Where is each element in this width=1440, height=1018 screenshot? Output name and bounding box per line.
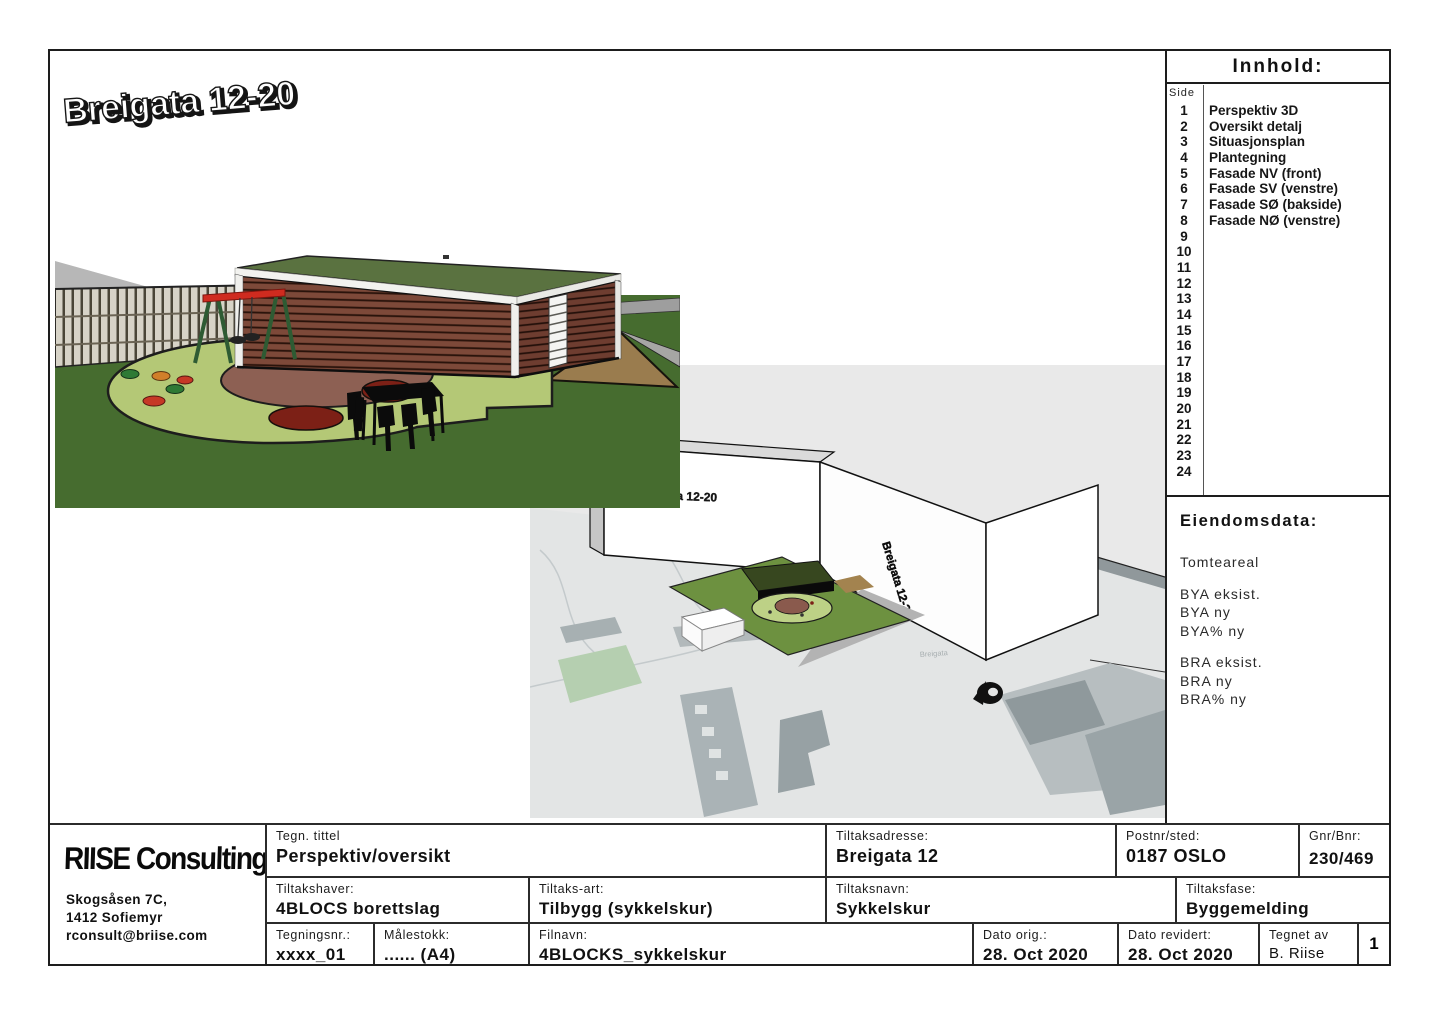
field-value: 4BLOCS borettslag	[276, 899, 528, 919]
innhold-page-number: 12	[1167, 276, 1201, 292]
innhold-page-number: 1	[1167, 103, 1201, 119]
innhold-page-number: 22	[1167, 432, 1201, 448]
field-gnr-bnr: Gnr/Bnr: 230/469	[1298, 823, 1389, 876]
field-postnr-sted: Postnr/sted: 0187 OSLO	[1115, 823, 1298, 876]
innhold-page-number: 7	[1167, 197, 1201, 213]
innhold-page-number: 14	[1167, 307, 1201, 323]
innhold-item-label: Fasade SV (venstre)	[1201, 181, 1338, 197]
field-tegn-tittel: Tegn. tittel Perspektiv/oversikt	[265, 823, 825, 876]
innhold-item-label: Fasade SØ (bakside)	[1201, 197, 1342, 213]
company-address: Skogsåsen 7C, 1412 Sofiemyr rconsult@bri…	[66, 891, 265, 945]
field-label: Tiltaksnavn:	[836, 882, 1175, 896]
innhold-page-number: 3	[1167, 134, 1201, 150]
innhold-row: 17	[1167, 354, 1389, 370]
innhold-item-label	[1201, 338, 1209, 354]
innhold-page-number: 15	[1167, 323, 1201, 339]
innhold-item-label: Situasjonsplan	[1201, 134, 1305, 150]
field-value: 230/469	[1309, 849, 1389, 869]
field-tiltakshaver: Tiltakshaver: 4BLOCS borettslag	[265, 876, 528, 922]
eiendomsdata-title: Eiendomsdata:	[1180, 512, 1380, 531]
innhold-item-label	[1201, 401, 1209, 417]
field-tiltaksadresse: Tiltaksadresse: Breigata 12	[825, 823, 1115, 876]
innhold-item-label	[1201, 323, 1209, 339]
bike-shed	[235, 255, 621, 378]
innhold-page-number: 24	[1167, 464, 1201, 480]
field-value: Breigata 12	[836, 846, 1115, 867]
innhold-page-number: 8	[1167, 213, 1201, 229]
eiendomsdata-bra-pct: BRA% ny	[1180, 690, 1380, 709]
innhold-row: 20	[1167, 401, 1389, 417]
company-email: rconsult@briise.com	[66, 927, 265, 945]
field-tiltaks-art: Tiltaks-art: Tilbygg (sykkelskur)	[528, 876, 825, 922]
company-address-line1: Skogsåsen 7C,	[66, 891, 265, 909]
innhold-page-number: 9	[1167, 229, 1201, 245]
innhold-item-label	[1201, 385, 1209, 401]
innhold-page-number: 13	[1167, 291, 1201, 307]
innhold-item-label	[1201, 276, 1209, 292]
innhold-item-label	[1201, 260, 1209, 276]
eiendomsdata-bra-ny: BRA ny	[1180, 672, 1380, 691]
innhold-row: 24	[1167, 464, 1389, 480]
innhold-title: Innhold:	[1167, 51, 1389, 84]
innhold-item-label: Oversikt detalj	[1201, 119, 1302, 135]
innhold-row: 16	[1167, 338, 1389, 354]
eiendomsdata-tomteareal: Tomteareal	[1180, 553, 1380, 572]
perspective-render	[55, 255, 680, 508]
innhold-page-number: 16	[1167, 338, 1201, 354]
field-value: B. Riise	[1269, 945, 1357, 962]
innhold-item-label	[1201, 432, 1209, 448]
innhold-page-number: 10	[1167, 244, 1201, 260]
innhold-row: 7Fasade SØ (bakside)	[1167, 197, 1389, 213]
innhold-item-label	[1201, 370, 1209, 386]
field-label: Tegnet av	[1269, 928, 1357, 942]
field-dato-revidert: Dato revidert: 28. Oct 2020	[1117, 922, 1258, 964]
innhold-page-number: 5	[1167, 166, 1201, 182]
innhold-item-label: Plantegning	[1201, 150, 1286, 166]
innhold-row: 12	[1167, 276, 1389, 292]
field-label: Tiltaksadresse:	[836, 829, 1115, 843]
innhold-row: 4Plantegning	[1167, 150, 1389, 166]
field-malestokk: Målestokk: ...... (A4)	[373, 922, 528, 964]
company-address-line2: 1412 Sofiemyr	[66, 909, 265, 927]
innhold-row: 1Perspektiv 3D	[1167, 103, 1389, 119]
innhold-list: 1Perspektiv 3D2Oversikt detalj3Situasjon…	[1167, 103, 1389, 480]
innhold-page-number: 21	[1167, 417, 1201, 433]
innhold-page-number: 19	[1167, 385, 1201, 401]
innhold-row: 5Fasade NV (front)	[1167, 166, 1389, 182]
field-filnavn: Filnavn: 4BLOCKS_sykkelskur	[528, 922, 972, 964]
innhold-item-label: Fasade NØ (venstre)	[1201, 213, 1340, 229]
innhold-row: 9	[1167, 229, 1389, 245]
field-label: Dato revidert:	[1128, 928, 1258, 942]
innhold-item-label	[1201, 448, 1209, 464]
field-value: ...... (A4)	[384, 945, 528, 965]
field-label: Tiltaksfase:	[1186, 882, 1389, 896]
innhold-page-number: 18	[1167, 370, 1201, 386]
innhold-page-number: 6	[1167, 181, 1201, 197]
page-title: Breigata 12-20 Breigata 12-20	[52, 75, 342, 155]
innhold-page-number: 23	[1167, 448, 1201, 464]
field-value: Byggemelding	[1186, 899, 1389, 919]
innhold-row: 2Oversikt detalj	[1167, 119, 1389, 135]
field-label: Tiltaks-art:	[539, 882, 825, 896]
innhold-row: 8Fasade NØ (venstre)	[1167, 213, 1389, 229]
innhold-page-number: 2	[1167, 119, 1201, 135]
field-label: Postnr/sted:	[1126, 829, 1298, 843]
innhold-item-label	[1201, 417, 1209, 433]
field-value: xxxx_01	[276, 945, 373, 965]
innhold-page-number: 20	[1167, 401, 1201, 417]
field-label: Tegn. tittel	[276, 829, 825, 843]
innhold-row: 10	[1167, 244, 1389, 260]
field-dato-orig: Dato orig.: 28. Oct 2020	[972, 922, 1117, 964]
innhold-item-label: Fasade NV (front)	[1201, 166, 1322, 182]
innhold-row: 22	[1167, 432, 1389, 448]
field-label: Tiltakshaver:	[276, 882, 528, 896]
field-value: 28. Oct 2020	[1128, 945, 1258, 965]
innhold-row: 19	[1167, 385, 1389, 401]
innhold-bottom-border	[1165, 495, 1391, 497]
field-value: 0187 OSLO	[1126, 846, 1298, 867]
field-tegnet-av: Tegnet av B. Riise	[1258, 922, 1357, 964]
eiendomsdata-bya-eksist: BYA eksist.	[1180, 585, 1380, 604]
innhold-item-label: Perspektiv 3D	[1201, 103, 1298, 119]
innhold-item-label	[1201, 307, 1209, 323]
innhold-item-label	[1201, 354, 1209, 370]
innhold-row: 18	[1167, 370, 1389, 386]
innhold-item-label	[1201, 291, 1209, 307]
innhold-row: 3Situasjonsplan	[1167, 134, 1389, 150]
innhold-page-number: 4	[1167, 150, 1201, 166]
drawing-sheet-page: { "page_title": "Breigata 12-20", "innho…	[0, 0, 1440, 1018]
field-tiltaksnavn: Tiltaksnavn: Sykkelskur	[825, 876, 1175, 922]
innhold-row: 23	[1167, 448, 1389, 464]
innhold-row: 15	[1167, 323, 1389, 339]
field-value: 4BLOCKS_sykkelskur	[539, 945, 972, 965]
innhold-page-number: 11	[1167, 260, 1201, 276]
field-label: Filnavn:	[539, 928, 972, 942]
innhold-row: 14	[1167, 307, 1389, 323]
field-label: Målestokk:	[384, 928, 528, 942]
field-tegningsnr: Tegningsnr.: xxxx_01	[265, 922, 373, 964]
innhold-row: 21	[1167, 417, 1389, 433]
innhold-row: 13	[1167, 291, 1389, 307]
eiendomsdata-bya-pct: BYA% ny	[1180, 622, 1380, 641]
innhold-item-label	[1201, 244, 1209, 260]
field-value: Sykkelskur	[836, 899, 1175, 919]
innhold-row: 11	[1167, 260, 1389, 276]
eiendomsdata-panel: Eiendomsdata: Tomteareal BYA eksist. BYA…	[1180, 512, 1380, 709]
eiendomsdata-bya-ny: BYA ny	[1180, 603, 1380, 622]
field-label: Tegningsnr.:	[276, 928, 373, 942]
field-value: Perspektiv/oversikt	[276, 846, 825, 867]
company-block: RIISE Consulting Skogsåsen 7C, 1412 Sofi…	[50, 823, 265, 964]
field-label: Dato orig.:	[983, 928, 1117, 942]
innhold-item-label	[1201, 229, 1209, 245]
innhold-item-label	[1201, 464, 1209, 480]
innhold-page-number: 17	[1167, 354, 1201, 370]
innhold-side-label: Side	[1169, 87, 1195, 99]
eiendomsdata-bra-eksist: BRA eksist.	[1180, 653, 1380, 672]
sheet-page-number: 1	[1357, 922, 1389, 964]
field-label: Gnr/Bnr:	[1309, 829, 1389, 843]
field-value: Tilbygg (sykkelskur)	[539, 899, 825, 919]
company-logo: RIISE Consulting	[63, 841, 265, 877]
innhold-row: 6Fasade SV (venstre)	[1167, 181, 1389, 197]
field-tiltaksfase: Tiltaksfase: Byggemelding	[1175, 876, 1389, 922]
field-value: 28. Oct 2020	[983, 945, 1117, 965]
